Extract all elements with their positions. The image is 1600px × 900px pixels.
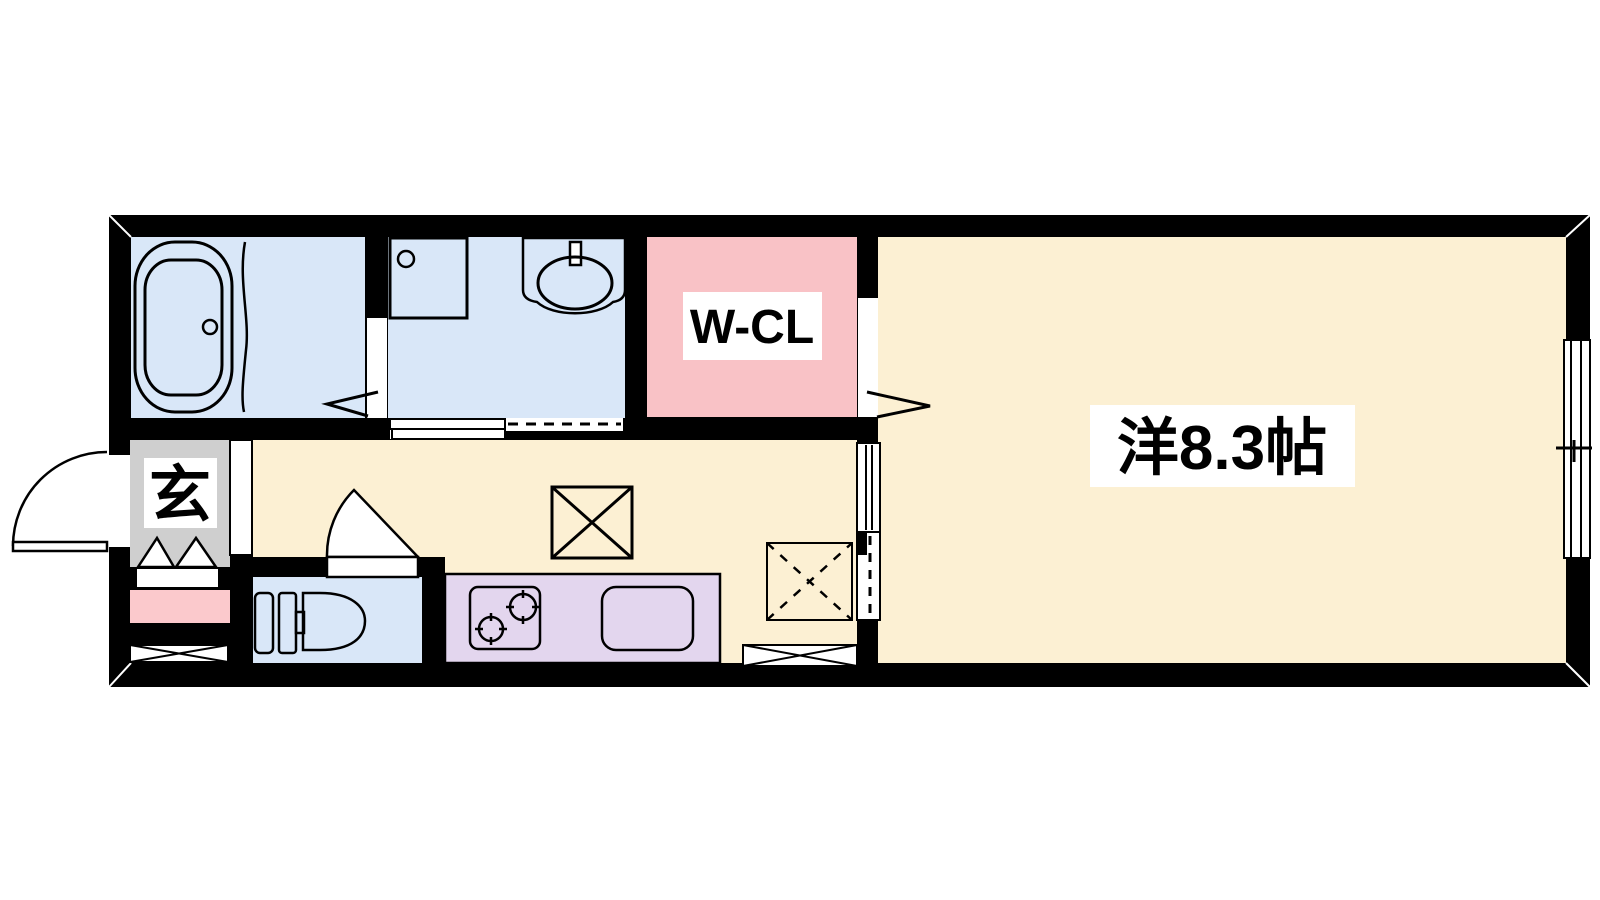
washbasin-faucet	[570, 242, 581, 265]
entrance-door-opening	[108, 455, 130, 547]
floor-plan-drawing: 玄 W-CL 洋8.3帖	[0, 0, 1600, 900]
main-room-label: 洋8.3帖	[1090, 405, 1355, 487]
sliding-door-panel	[857, 443, 880, 532]
entrance-door-leaf	[13, 542, 107, 551]
room-washroom	[388, 237, 625, 418]
room-bathroom	[131, 237, 365, 418]
entrance-label-text: 玄	[149, 461, 211, 530]
walk-in-closet-label: W-CL	[683, 292, 822, 360]
floor-plan-page: 玄 W-CL 洋8.3帖	[0, 0, 1600, 900]
toilet-wall-right	[422, 557, 445, 663]
genkan-hall-opening	[230, 440, 252, 555]
genkan-step	[136, 568, 219, 588]
main-room-sliding-door-icon	[857, 443, 880, 620]
sliding-door-wall-fill	[505, 431, 623, 440]
washroom-sliding-door-icon	[390, 418, 623, 440]
entrance-label: 玄	[144, 458, 217, 530]
toilet-wall-left	[230, 555, 253, 663]
porch-strip	[130, 590, 230, 623]
wall-cross-box-icon	[130, 645, 228, 662]
wall-cross-box-icon	[743, 645, 857, 666]
main-room-label-text: 洋8.3帖	[1117, 414, 1327, 483]
sliding-door-panel	[390, 419, 505, 429]
toilet-door-leaf	[327, 557, 418, 577]
walk-in-closet-label-text: W-CL	[690, 301, 814, 354]
bathroom-door-opening	[367, 318, 387, 418]
sliding-door-stop	[857, 532, 867, 555]
closet-door-opening	[858, 298, 878, 417]
sliding-door-panel	[392, 429, 505, 439]
